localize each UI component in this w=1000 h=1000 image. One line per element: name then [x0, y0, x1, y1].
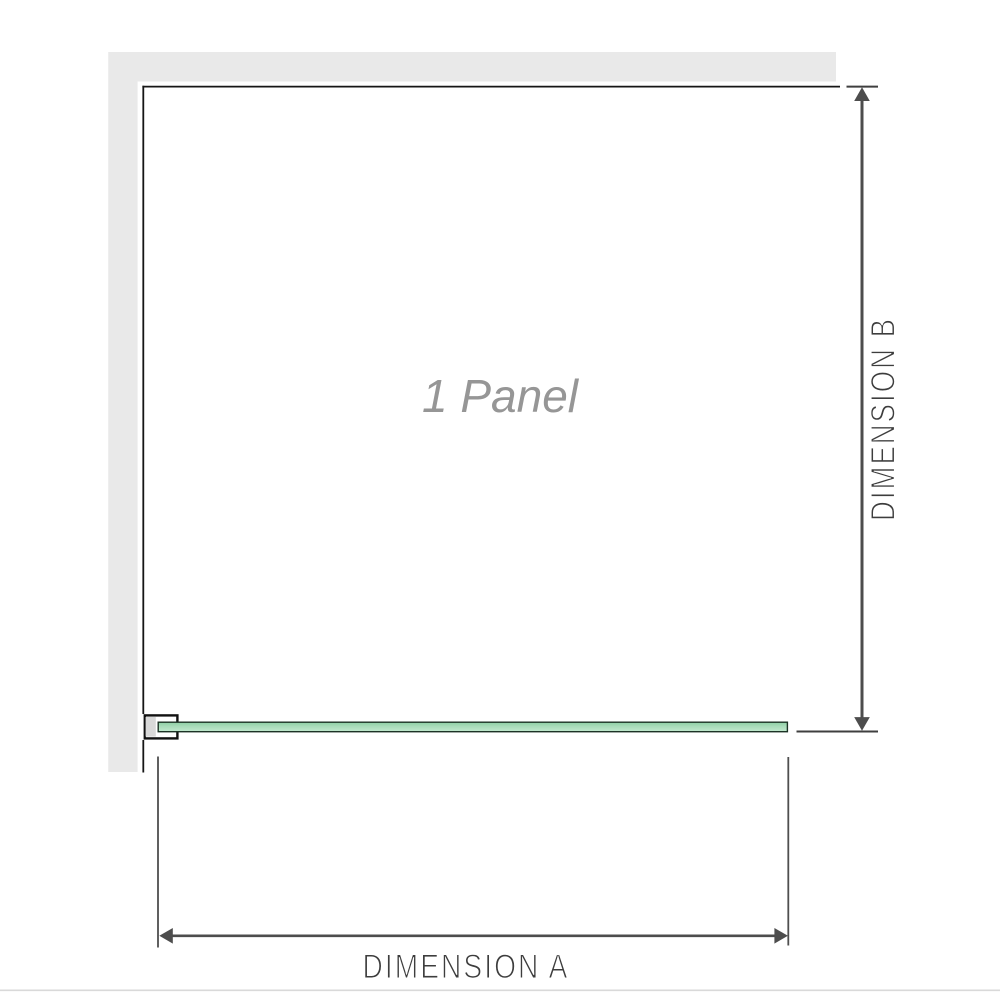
- svg-text:DIMENSION B: DIMENSION B: [865, 317, 903, 521]
- svg-text:1 Panel: 1 Panel: [422, 370, 580, 422]
- svg-text:DIMENSION A: DIMENSION A: [363, 948, 570, 986]
